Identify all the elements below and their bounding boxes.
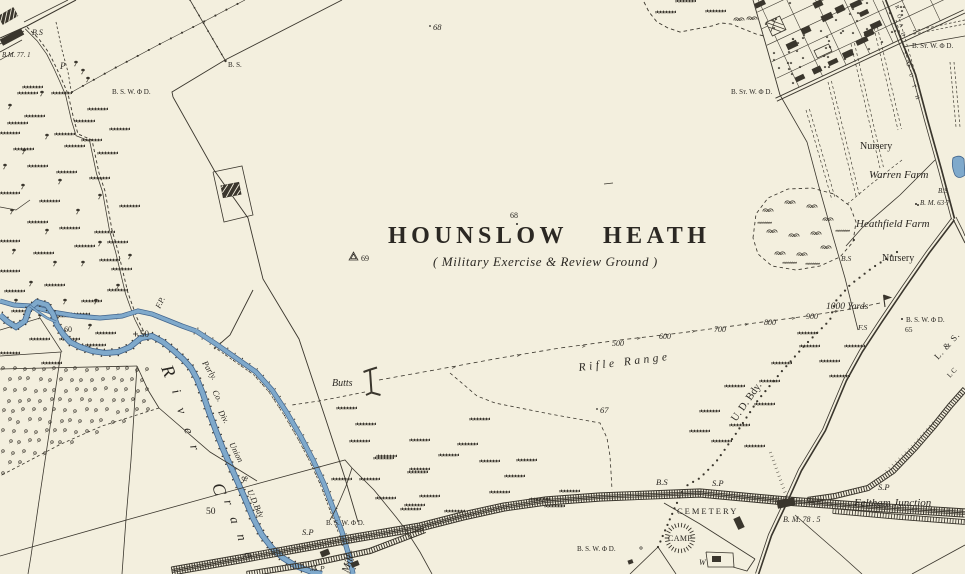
svg-text:CAMP: CAMP (668, 534, 692, 543)
svg-text:B.S: B.S (656, 477, 668, 487)
svg-text:Feltham Junction: Feltham Junction (853, 497, 932, 509)
svg-text:900: 900 (806, 312, 818, 321)
svg-text:65: 65 (905, 325, 913, 334)
svg-text:B. S. W. Φ D.: B. S. W. Φ D. (112, 88, 151, 96)
svg-text:67: 67 (600, 405, 609, 415)
svg-text:S.P: S.P (712, 478, 724, 488)
svg-text:B.S: B.S (938, 187, 948, 195)
svg-text:B.S: B.S (841, 254, 851, 263)
svg-text:B. S. W. Φ D.: B. S. W. Φ D. (326, 519, 365, 527)
svg-text:Warren Farm: Warren Farm (869, 169, 928, 181)
svg-text:CEMETERY: CEMETERY (677, 506, 738, 516)
svg-text:S.P: S.P (878, 482, 890, 492)
svg-text:800: 800 (764, 318, 776, 327)
svg-text:B. S. W. Φ D.: B. S. W. Φ D. (906, 316, 945, 324)
svg-text:Nursery: Nursery (882, 253, 914, 264)
svg-text:B.M. 77. 1: B.M. 77. 1 (2, 52, 31, 59)
svg-text:B. Sт. W. Φ D.: B. Sт. W. Φ D. (731, 88, 772, 96)
svg-text:69: 69 (361, 254, 369, 263)
svg-text:Nursery: Nursery (860, 141, 892, 152)
svg-text:F.S: F.S (857, 323, 867, 332)
svg-text:HEATH: HEATH (603, 223, 710, 249)
svg-text:B. M. 78 . 5: B. M. 78 . 5 (783, 515, 821, 524)
svg-text:68: 68 (510, 211, 518, 220)
svg-text:50: 50 (140, 329, 150, 339)
svg-text:Heathfield Farm: Heathfield Farm (855, 218, 930, 230)
svg-text:Butts: Butts (332, 378, 353, 389)
svg-text:( Military Exercise & Review G: ( Military Exercise & Review Ground ) (433, 254, 658, 269)
svg-text:68: 68 (433, 22, 442, 32)
svg-text:B. Sт. W. Φ D.: B. Sт. W. Φ D. (912, 42, 953, 50)
svg-text:600: 600 (659, 332, 671, 341)
svg-text:B.S: B.S (32, 28, 43, 37)
svg-text:S.P: S.P (302, 527, 314, 537)
svg-text:60: 60 (64, 325, 72, 334)
svg-text:B. S. W. Φ D.: B. S. W. Φ D. (577, 545, 616, 553)
svg-text:M. P: M. P (309, 564, 325, 573)
svg-text:500: 500 (612, 339, 624, 348)
svg-text:B. M. 63·7: B. M. 63·7 (920, 199, 950, 207)
svg-text:HOUNSLOW: HOUNSLOW (388, 223, 568, 249)
svg-text:700: 700 (714, 325, 726, 334)
svg-text:1000 Yards: 1000 Yards (826, 302, 869, 312)
svg-text:B. S.: B. S. (228, 61, 242, 69)
svg-text:P: P (59, 61, 66, 71)
svg-text:50: 50 (206, 507, 216, 517)
